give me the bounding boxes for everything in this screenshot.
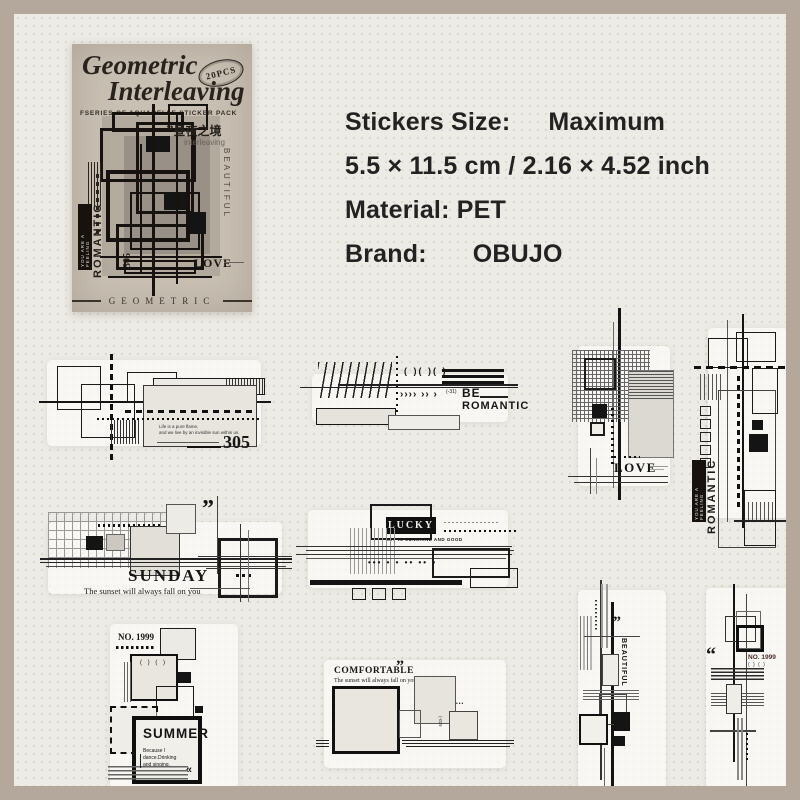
size-value: Maximum	[548, 108, 665, 136]
sticker-love: LOVE	[556, 308, 684, 500]
sticker-be-romantic: ( )( )( ) ›››› ›› › (-31) BE ROMANTIC	[300, 356, 518, 434]
micro-text: Life is a pure flame,	[159, 424, 198, 429]
gray-bars	[601, 584, 610, 648]
sticker-comfortable: COMFORTABLE ” The sunset will always fal…	[310, 650, 518, 782]
dots-text: •••	[456, 701, 464, 707]
beautiful-word-vertical: BEAUTIFUL	[620, 638, 627, 687]
dashed-line-v	[110, 354, 113, 460]
sticker-lucky: LUCKY LET IN SUNSHINE AND GOOD ••• • • •…	[296, 500, 524, 604]
square-outline-bold	[332, 686, 400, 754]
small-square	[700, 432, 711, 442]
brackets-text: ( ) ( )	[140, 660, 167, 666]
square-outline	[736, 332, 776, 362]
summer-line1: Because I	[143, 748, 165, 754]
hatch-block	[580, 616, 593, 670]
summer-word: SUMMER	[143, 726, 209, 741]
material-label: Material:	[345, 196, 450, 224]
footer-rule	[72, 300, 101, 302]
gray-square	[106, 534, 125, 551]
rect-outline	[752, 368, 778, 414]
rect-outline	[388, 415, 460, 430]
rect-filled	[316, 408, 396, 425]
package-title-line2: Interleaving	[108, 76, 245, 107]
black-square	[752, 420, 763, 430]
info-dims-line: 5.5 × 11.5 cm / 2.16 × 4.52 inch	[345, 144, 775, 188]
black-square	[592, 404, 607, 418]
rect-outline	[156, 686, 194, 720]
bar-h	[442, 375, 504, 378]
sunday-subtitle: The sunset will always fall on you	[84, 586, 201, 596]
hatch-band	[711, 668, 764, 681]
comfortable-subtitle: The sunset will always fall on you	[334, 678, 416, 684]
line-h	[402, 740, 514, 741]
product-info: Stickers Size:Maximum 5.5 × 11.5 cm / 2.…	[345, 100, 775, 276]
cluster-line-h	[108, 276, 212, 278]
brackets-text: ( )( )( )	[404, 366, 447, 376]
hatch-lines	[124, 662, 133, 702]
sticker-no1999: NO. 1999 ( ) ( ) “	[680, 570, 800, 800]
black-square	[614, 736, 625, 746]
line-h	[316, 743, 329, 744]
romantic-word: ROMANTIC	[706, 442, 718, 534]
small-square	[352, 588, 366, 600]
you-are-a-feeling-label: YOU ARE A FEELING	[78, 204, 92, 270]
brand-label: Brand:	[345, 240, 427, 268]
love-text: LOVE	[194, 256, 232, 271]
gray-rect	[628, 370, 674, 458]
sticker-sunday: ” SUNDAY The sunset will always fall on …	[40, 496, 292, 604]
hatch-block	[350, 528, 398, 574]
script-deco-line	[650, 469, 664, 470]
be-text: BE	[462, 386, 481, 400]
black-square	[195, 706, 203, 713]
cluster-line-v	[152, 104, 155, 296]
cluster-rect	[124, 260, 196, 274]
small-square	[372, 588, 386, 600]
info-size-line: Stickers Size:Maximum	[345, 100, 775, 144]
line-h	[198, 556, 292, 557]
square-outline-bold	[584, 358, 616, 390]
gray-bars	[737, 718, 743, 780]
cluster-black-square	[164, 192, 186, 210]
line-v	[240, 524, 241, 602]
rect-outline	[726, 684, 742, 714]
cluster-line-v	[140, 144, 142, 274]
script-deco-line	[650, 466, 668, 467]
dashed-row	[125, 410, 257, 413]
quote-mark: ”	[202, 496, 214, 523]
romantic-label-group: YOU ARE A FEELING ROMANTIC	[692, 442, 718, 534]
line-h	[584, 636, 640, 637]
summer-line2: dance.Drinking	[143, 755, 176, 761]
square-outline	[590, 422, 605, 436]
footer-rule	[223, 300, 252, 302]
line-h	[710, 730, 756, 732]
rect-outline	[470, 568, 518, 588]
square-outline-bold	[736, 625, 764, 652]
line-v	[590, 448, 591, 494]
black-square	[86, 536, 103, 550]
dots-row-text: ••• • • •• •• •	[368, 558, 437, 567]
side-code-text: (-029	[438, 716, 443, 727]
no-1999-text: NO. 1999	[118, 632, 154, 642]
hatch-block	[111, 420, 139, 444]
love-word: LOVE	[614, 460, 657, 476]
line-h	[206, 568, 292, 569]
material-value: PET	[457, 196, 506, 224]
tag-text: (-31)	[446, 389, 457, 395]
small-square	[392, 588, 406, 600]
hatch-block	[748, 502, 774, 522]
line-h	[300, 387, 518, 388]
line-h	[296, 546, 512, 547]
size-label: Stickers Size:	[345, 108, 510, 136]
line-v	[140, 754, 141, 768]
num-305-vertical: 305	[122, 222, 133, 268]
line-h	[316, 746, 329, 747]
footer-text: GEOMETRIC	[109, 296, 216, 306]
line-h	[734, 520, 786, 522]
line-h	[402, 743, 514, 744]
you-are-a-feeling-label: YOU ARE A FEELING	[692, 460, 706, 522]
sticker-summer: NO. 1999 ( ) ( ) SUMMER Because I dance.…	[98, 610, 250, 800]
line-h	[190, 588, 250, 589]
cn-text: 昼夜之境	[174, 124, 222, 138]
romantic-label-group: YOU ARE A FEELING ROMANTIC	[78, 190, 104, 278]
sunday-word: SUNDAY	[128, 566, 209, 586]
rect-outline	[399, 710, 421, 738]
dotted-line-v	[746, 733, 748, 763]
package-footer: GEOMETRIC	[72, 296, 252, 306]
small-square	[700, 419, 711, 429]
dotted-row	[116, 646, 156, 649]
sticker-beautiful: ” BEAUTIFUL	[564, 570, 682, 800]
dotted-row	[444, 530, 516, 532]
hatch-lines	[108, 766, 188, 780]
line-h	[568, 476, 668, 477]
line-h	[480, 396, 508, 398]
info-brand-line: Brand:OBUJO	[345, 232, 775, 276]
rect-outline	[602, 654, 619, 686]
black-square	[749, 434, 768, 452]
romantic-text: ROMANTIC	[462, 400, 529, 412]
product-image: Geometric 20PCS Interleaving FSERIES OF …	[0, 0, 800, 800]
black-square	[178, 672, 191, 683]
thick-bar	[310, 580, 462, 585]
line-h	[187, 446, 221, 448]
quote-mark: ”	[166, 123, 174, 139]
cluster-black-square	[190, 212, 206, 234]
quote-mark: “	[706, 644, 716, 667]
arrows-text: ›››› ›› ›	[400, 389, 438, 400]
line-h	[157, 442, 219, 443]
line-v	[604, 748, 605, 786]
sticker-305: Life is a pure flame, and we live by an …	[39, 354, 271, 462]
quote-mark: ”	[396, 658, 404, 676]
sticker-romantic-vertical: YOU ARE A FEELING ROMANTIC	[690, 314, 800, 528]
line-h	[316, 740, 329, 741]
line-v	[596, 458, 597, 494]
small-square	[700, 406, 711, 416]
beautiful-vertical-text: BEAUTIFUL	[222, 148, 231, 240]
quote-mark: ”	[613, 614, 621, 632]
dotted-line-v	[595, 600, 597, 632]
diagonal-hatch	[318, 362, 392, 398]
sticker-package: Geometric 20PCS Interleaving FSERIES OF …	[72, 44, 252, 312]
square-outline	[166, 504, 196, 534]
romantic-vertical-text: ROMANTIC	[92, 190, 104, 278]
hatch-block	[629, 371, 673, 401]
line-h	[338, 384, 518, 386]
black-square	[614, 712, 630, 731]
brand-value: OBUJO	[473, 240, 563, 268]
bar-h	[442, 369, 504, 372]
number-305: 305	[223, 432, 250, 453]
line-v	[248, 530, 249, 602]
dotted-row	[444, 522, 500, 523]
interleaving-text: interleaving	[184, 138, 225, 147]
line-h	[406, 746, 510, 747]
dotted-row	[614, 456, 640, 458]
square-outline	[449, 711, 478, 740]
info-material-line: Material: PET	[345, 188, 775, 232]
love-deco-line	[224, 262, 244, 263]
line-h	[574, 482, 668, 483]
square-outline-bold	[579, 714, 608, 745]
no-1999-text: NO. 1999	[748, 654, 776, 661]
dashed-line-h	[694, 366, 800, 369]
